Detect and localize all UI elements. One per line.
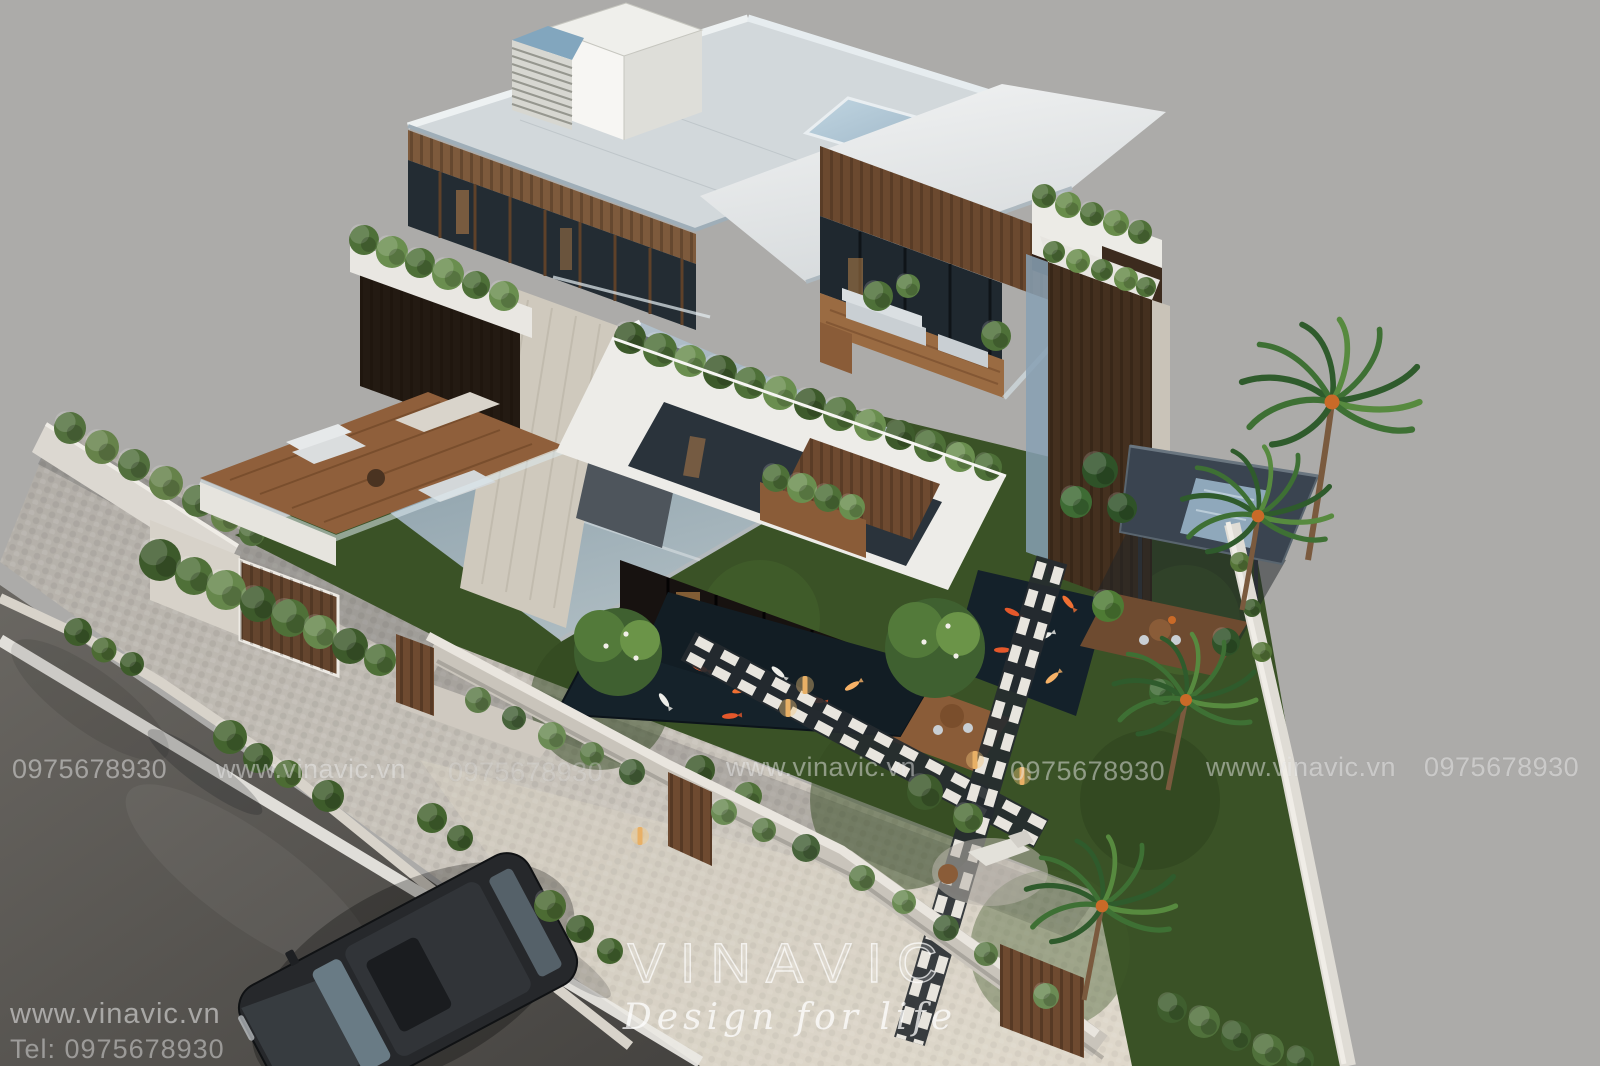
watermark: 0975678930	[12, 754, 167, 785]
watermark: www.vinavic.vn	[1206, 752, 1396, 783]
brand-tagline: Design for life	[560, 997, 1020, 1038]
brand-logo: VINAVIC Design for life	[560, 930, 1020, 1038]
watermark: 0975678930	[448, 757, 603, 788]
watermark-website: www.vinavic.vn	[10, 998, 225, 1031]
watermark: www.vinavic.vn	[216, 754, 406, 785]
watermark: www.vinavic.vn	[726, 752, 916, 783]
coffee-table	[367, 469, 385, 487]
corner-watermark: www.vinavic.vn Tel: 0975678930	[10, 998, 225, 1065]
watermark-phone: Tel: 0975678930	[10, 1034, 225, 1065]
watermark: 0975678930	[1424, 752, 1579, 783]
villa-scene	[0, 0, 1600, 1066]
brand-name: VINAVIC	[560, 930, 1020, 995]
garden-table	[940, 704, 964, 728]
watermark: 0975678930	[1010, 756, 1165, 787]
architectural-rendering: 0975678930 www.vinavic.vn 0975678930 www…	[0, 0, 1600, 1066]
